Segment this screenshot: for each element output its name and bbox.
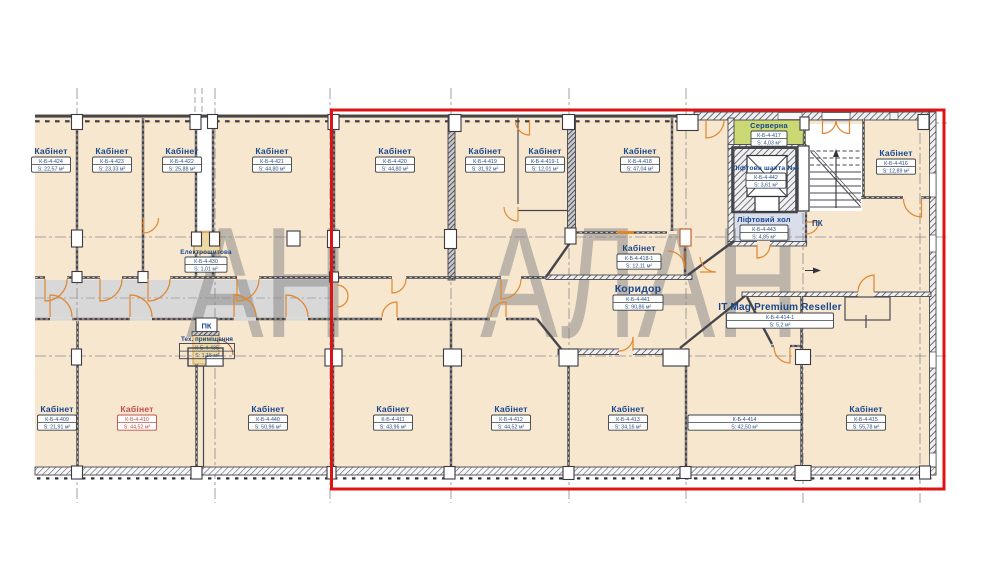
- svg-text:Кабінет: Кабінет: [40, 404, 73, 414]
- svg-text:К-Б-4-421: К-Б-4-421: [260, 159, 284, 165]
- svg-text:К-Б-4-441: К-Б-4-441: [626, 297, 650, 303]
- svg-text:S: 47,04 м²: S: 47,04 м²: [627, 167, 654, 173]
- svg-text:К-Б-4-435: К-Б-4-435: [195, 345, 219, 351]
- svg-text:S: 23,33 м²: S: 23,33 м²: [99, 167, 126, 173]
- svg-text:Ліфтовий хол: Ліфтовий хол: [737, 215, 790, 224]
- svg-text:Кабінет: Кабінет: [376, 404, 409, 414]
- svg-text:К-Б-4-443: К-Б-4-443: [752, 227, 776, 233]
- svg-text:К-Б-4-418: К-Б-4-418: [628, 159, 652, 165]
- svg-text:S: 22,57 м²: S: 22,57 м²: [38, 167, 65, 173]
- svg-text:К-Б-4-422: К-Б-4-422: [170, 159, 194, 165]
- svg-text:S: 12,11 м²: S: 12,11 м²: [626, 264, 652, 270]
- svg-text:Серверна: Серверна: [750, 121, 788, 130]
- svg-text:Кабінет: Кабінет: [255, 146, 288, 156]
- svg-text:S: 3,61 м²: S: 3,61 м²: [754, 183, 778, 189]
- svg-text:S: 5,2 м²: S: 5,2 м²: [770, 323, 791, 329]
- svg-text:К-Б-4-419-1: К-Б-4-419-1: [531, 159, 559, 165]
- svg-text:Кабінет: Кабінет: [378, 146, 411, 156]
- svg-text:S: 43,96 м²: S: 43,96 м²: [380, 425, 407, 431]
- svg-text:S: 44,80 м²: S: 44,80 м²: [259, 167, 286, 173]
- svg-text:S: 12,89 м²: S: 12,89 м²: [883, 169, 910, 175]
- svg-text:К-Б-4-442: К-Б-4-442: [754, 175, 778, 181]
- svg-text:Кабінет: Кабінет: [251, 404, 284, 414]
- svg-text:ПК: ПК: [812, 219, 823, 228]
- svg-text:К-Б-4-424: К-Б-4-424: [39, 159, 63, 165]
- svg-text:S: 21,91 м²: S: 21,91 м²: [44, 425, 71, 431]
- svg-text:К-Б-4-413: К-Б-4-413: [616, 417, 640, 423]
- svg-text:Тех. приміщення: Тех. приміщення: [181, 335, 233, 343]
- svg-text:S: 25,88 м²: S: 25,88 м²: [169, 167, 196, 173]
- svg-text:К-Б-4-419: К-Б-4-419: [473, 159, 497, 165]
- svg-text:Кабінет: Кабінет: [528, 146, 561, 156]
- svg-text:К-Б-4-423: К-Б-4-423: [100, 159, 124, 165]
- svg-text:К-Б-4-418-1: К-Б-4-418-1: [625, 256, 653, 262]
- svg-text:Коридор: Коридор: [615, 283, 662, 295]
- svg-text:К-Б-4-440: К-Б-4-440: [256, 417, 280, 423]
- svg-text:К-Б-4-409: К-Б-4-409: [45, 417, 69, 423]
- svg-text:К-Б-4-420: К-Б-4-420: [383, 159, 407, 165]
- svg-text:К-Б-4-430: К-Б-4-430: [194, 259, 218, 265]
- svg-text:S: 90,86 м²: S: 90,86 м²: [625, 305, 652, 311]
- svg-text:ПК: ПК: [202, 322, 212, 331]
- svg-text:ІТ Mag Premium Reseller: ІТ Mag Premium Reseller: [718, 302, 842, 313]
- svg-text:S: 4,03 м²: S: 4,03 м²: [757, 141, 781, 147]
- svg-text:К-Б-4-415: К-Б-4-415: [854, 417, 878, 423]
- svg-text:К-Б-4-410: К-Б-4-410: [125, 417, 149, 423]
- svg-text:S: 31,92 м²: S: 31,92 м²: [472, 167, 499, 173]
- svg-text:К-Б-4-411: К-Б-4-411: [381, 417, 404, 423]
- svg-text:S: 50,96 м²: S: 50,96 м²: [255, 425, 282, 431]
- svg-text:S: 34,16 м²: S: 34,16 м²: [615, 425, 642, 431]
- svg-text:Кабінет: Кабінет: [34, 146, 67, 156]
- svg-text:Ліфтова шахта №4: Ліфтова шахта №4: [733, 164, 799, 172]
- svg-text:S: 55,78 м²: S: 55,78 м²: [853, 425, 880, 431]
- svg-text:Кабінет: Кабінет: [623, 146, 656, 156]
- svg-text:Кабінет: Кабінет: [165, 146, 198, 156]
- svg-text:Кабінет: Кабінет: [468, 146, 501, 156]
- svg-text:Кабінет: Кабінет: [879, 148, 912, 158]
- svg-text:К-Б-4-412: К-Б-4-412: [499, 417, 523, 423]
- svg-text:К-Б-4-417: К-Б-4-417: [757, 133, 781, 139]
- svg-text:S: 44,80 м²: S: 44,80 м²: [382, 167, 409, 173]
- svg-text:Кабінет: Кабінет: [95, 146, 128, 156]
- svg-text:S: 42,50 м²: S: 42,50 м²: [731, 425, 758, 431]
- svg-text:К-Б-4-416: К-Б-4-416: [884, 161, 908, 167]
- svg-text:Кабінет: Кабінет: [622, 243, 655, 253]
- svg-text:Кабінет: Кабінет: [494, 404, 527, 414]
- svg-text:S: 12,01 м²: S: 12,01 м²: [532, 167, 559, 173]
- svg-text:Кабінет: Кабінет: [849, 404, 882, 414]
- svg-text:S: 1,01 м²: S: 1,01 м²: [194, 267, 218, 273]
- svg-text:S: 1,15 м²: S: 1,15 м²: [195, 353, 219, 359]
- svg-text:Кабінет: Кабінет: [611, 404, 644, 414]
- svg-text:К-Б-4-414: К-Б-4-414: [733, 417, 757, 423]
- svg-text:Електрощитова: Електрощитова: [180, 249, 232, 256]
- svg-text:S: 4,85 м²: S: 4,85 м²: [752, 235, 776, 241]
- svg-text:S: 44,52 м²: S: 44,52 м²: [124, 425, 151, 431]
- svg-text:К-Б-4-414-1: К-Б-4-414-1: [766, 315, 794, 321]
- svg-text:Кабінет: Кабінет: [120, 404, 153, 414]
- svg-text:S: 44,52 м²: S: 44,52 м²: [498, 425, 525, 431]
